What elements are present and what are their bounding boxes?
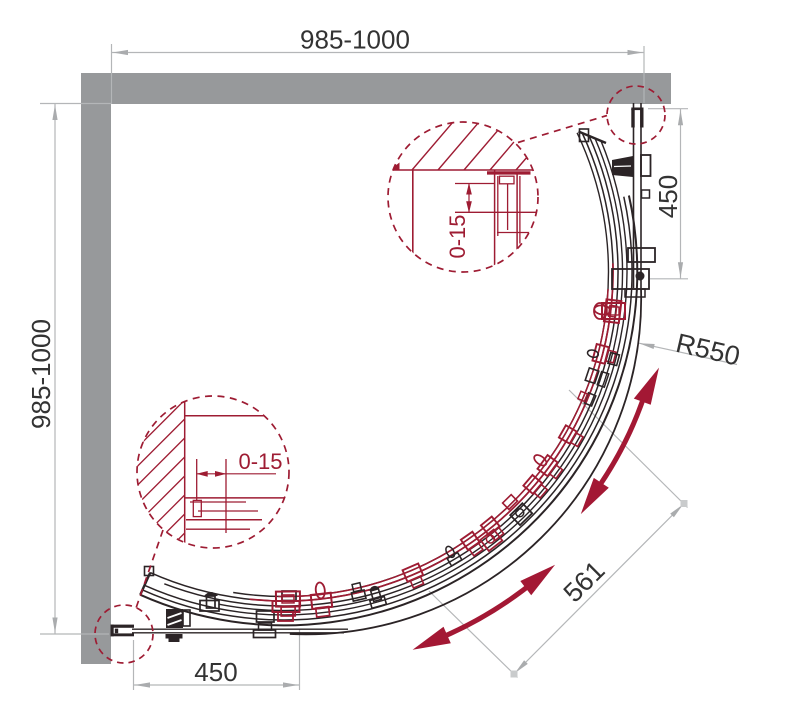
svg-text:0-15: 0-15 <box>238 449 282 474</box>
svg-text:985-1000: 985-1000 <box>300 25 410 55</box>
svg-text:450: 450 <box>653 175 683 218</box>
svg-text:450: 450 <box>194 657 237 687</box>
svg-text:0-15: 0-15 <box>445 214 470 258</box>
svg-text:985-1000: 985-1000 <box>26 319 56 429</box>
